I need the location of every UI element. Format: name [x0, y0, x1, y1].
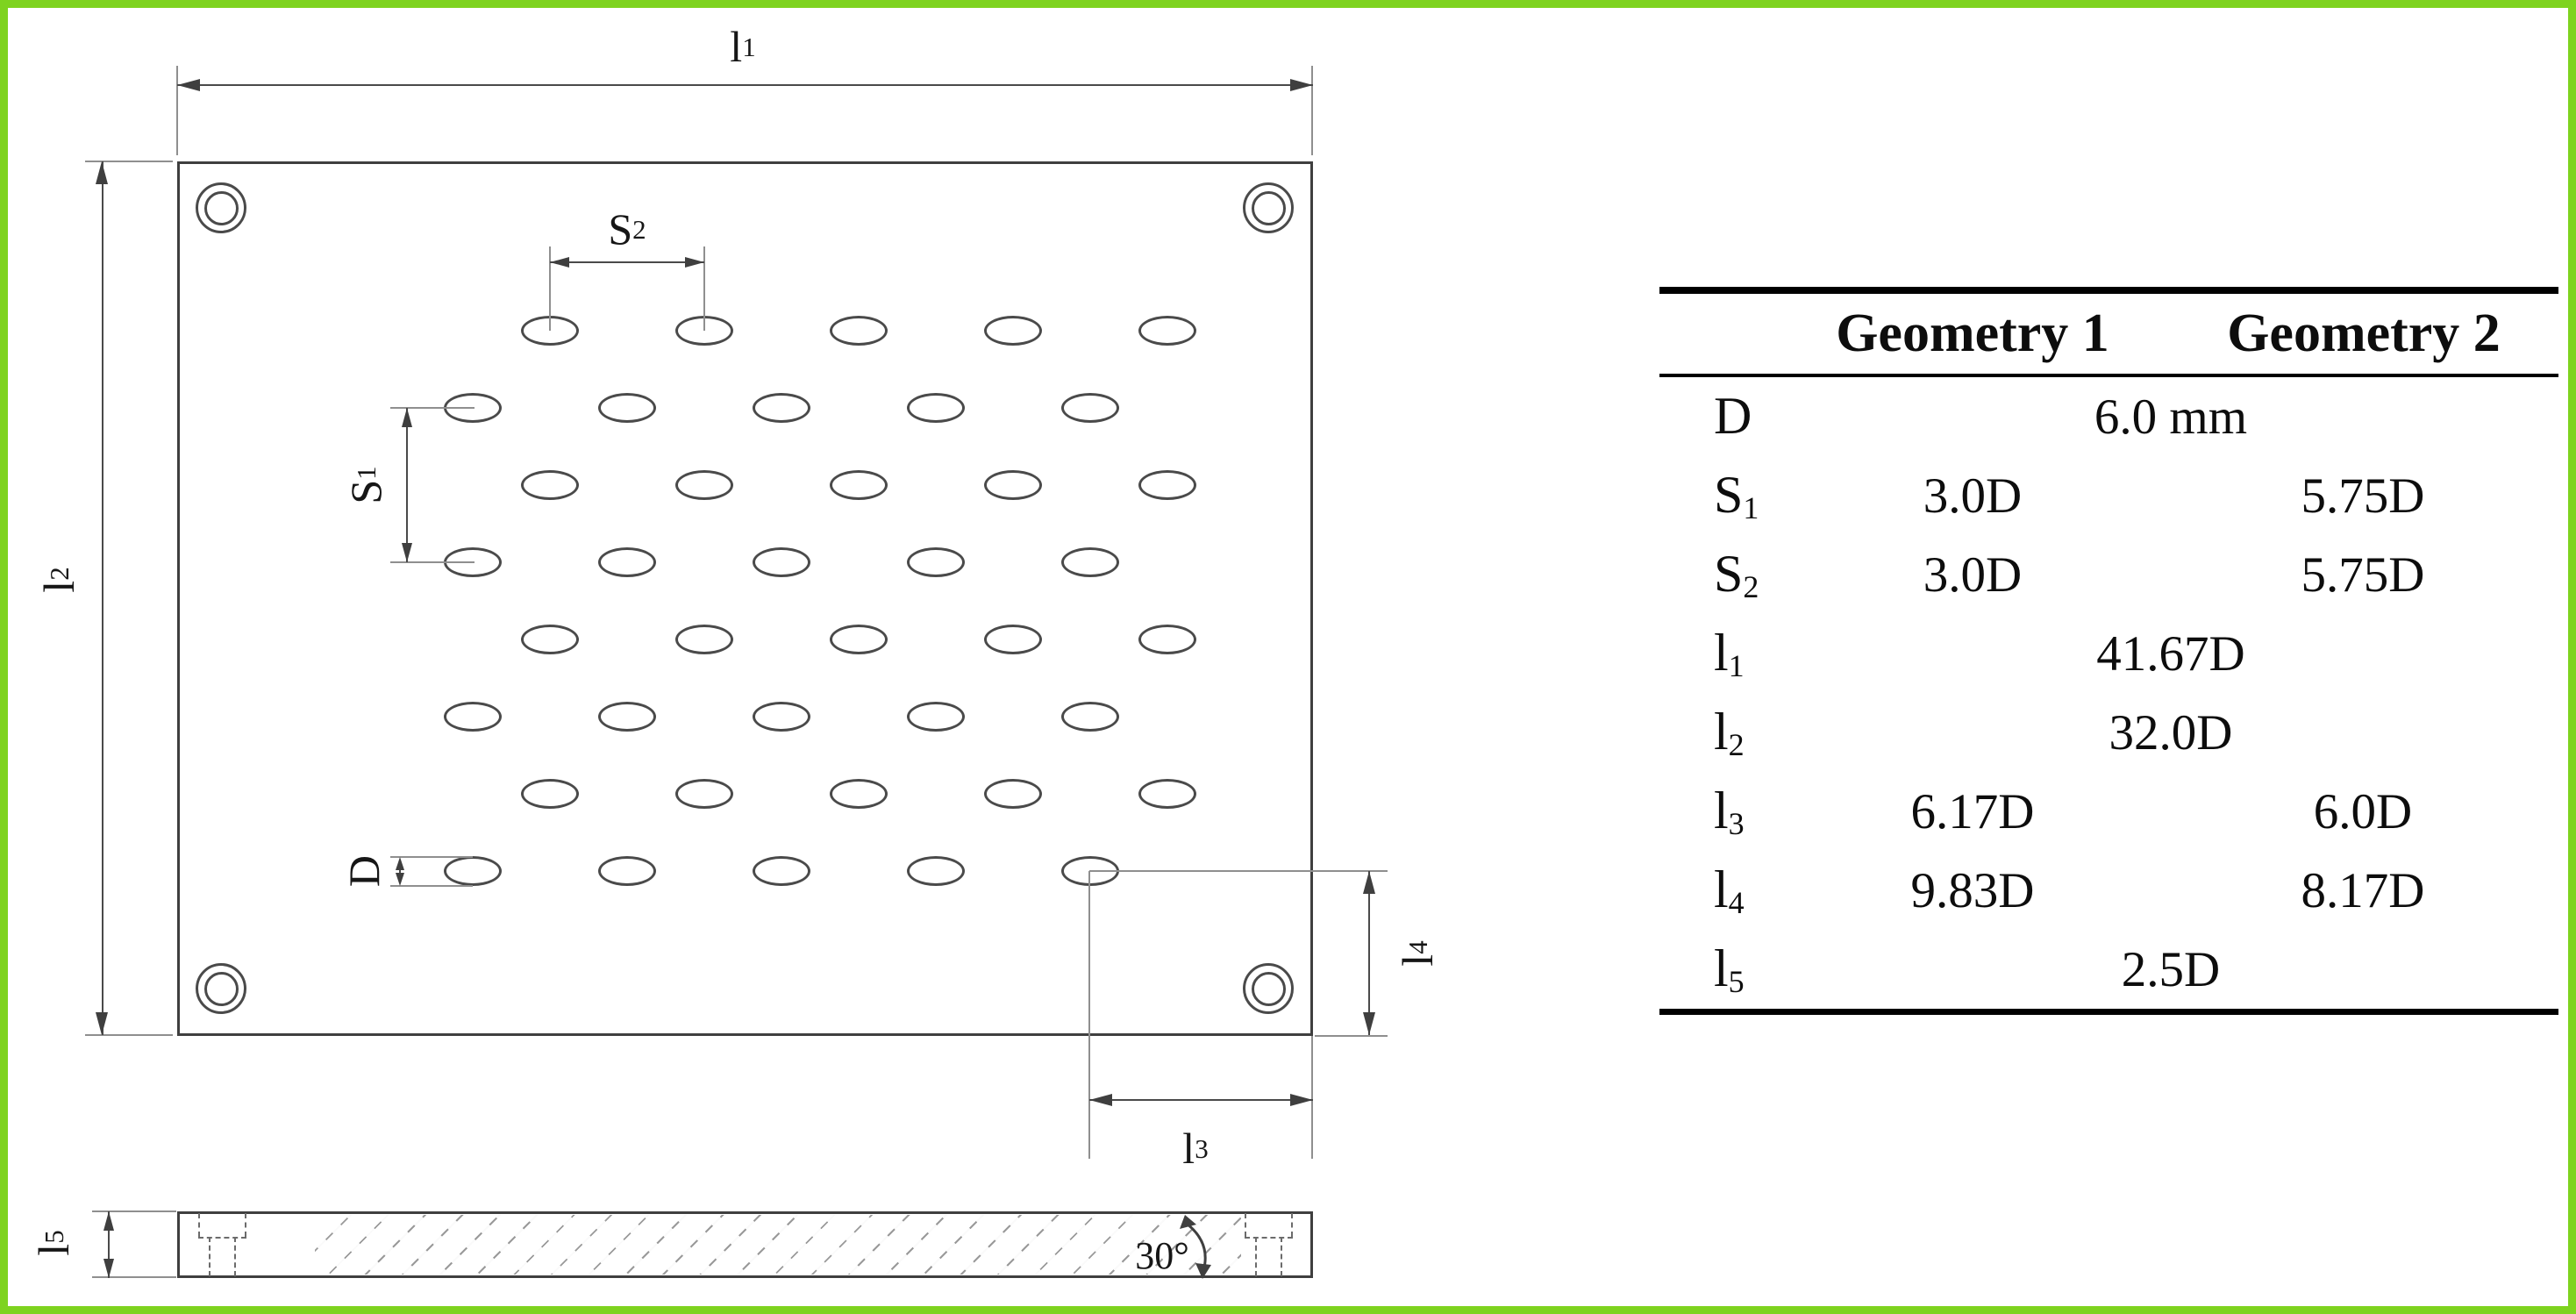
value-l1: 41.67D [1832, 625, 2558, 682]
l3-extension-line-left [1088, 871, 1090, 1159]
row-label-D: D [1659, 386, 1832, 447]
perforation-hole [907, 547, 965, 577]
perforation-hole [830, 470, 888, 500]
perforation-hole [830, 316, 888, 346]
perforation-hole [907, 702, 965, 732]
corner-mount-hole-bottom-right [1243, 963, 1294, 1014]
l4-dimension-label: l4 [1365, 901, 1470, 1006]
perforation-hole [1061, 393, 1119, 423]
row-label-S2: S2 [1659, 544, 1832, 605]
row-label-l3: l3 [1659, 781, 1832, 842]
table-row-l4: l4 9.83D 8.17D [1659, 851, 2558, 930]
value-l3-geometry1: 6.17D [1832, 783, 2113, 840]
row-label-l4: l4 [1659, 860, 1832, 921]
perforation-hole [444, 856, 502, 886]
l2-dimension-label: l2 [6, 536, 111, 624]
table-row-S1: S1 3.0D 5.75D [1659, 456, 2558, 535]
perforation-hole [753, 856, 810, 886]
perforation-hole [598, 856, 656, 886]
geometry-parameters-table: Geometry 1 Geometry 2 D 6.0 mm S1 3.0D 5… [1659, 287, 2558, 1015]
perforation-hole [598, 547, 656, 577]
row-label-l5: l5 [1659, 939, 1832, 1000]
perforation-hole [1061, 702, 1119, 732]
l4-arrowhead-top [1363, 871, 1375, 894]
l5-dimension-label: l5 [1, 1197, 106, 1289]
table-header-row: Geometry 1 Geometry 2 [1659, 294, 2558, 377]
table-row-l5: l5 2.5D [1659, 930, 2558, 1009]
perforation-hole [984, 470, 1042, 500]
l4-extension-line-bottom [1315, 1035, 1388, 1037]
l3-dimension-line [1089, 1099, 1313, 1101]
s2-arrowhead-right [685, 257, 704, 268]
l4-arrowhead-bottom [1363, 1012, 1375, 1035]
perforation-hole [1138, 316, 1196, 346]
table-row-l1: l1 41.67D [1659, 614, 2558, 693]
perforation-hole [675, 470, 733, 500]
perforation-hole [753, 702, 810, 732]
perforation-hole [1061, 547, 1119, 577]
s1-dimension-label: S1 [313, 432, 418, 538]
perforation-hole [598, 702, 656, 732]
table-row-S2: S2 3.0D 5.75D [1659, 535, 2558, 614]
counterbore-right-outer-left-edge [1245, 1213, 1246, 1237]
l1-arrowhead-right [1290, 79, 1313, 91]
perforation-hole [521, 470, 579, 500]
l3-dimension-label: l3 [1143, 1117, 1248, 1180]
value-S2-geometry2: 5.75D [2113, 546, 2558, 603]
perforation-hole [830, 625, 888, 654]
perforation-hole [984, 316, 1042, 346]
perforation-hole [907, 856, 965, 886]
hatch-angle-arc-arrow [1173, 1213, 1225, 1280]
perforation-hole [598, 393, 656, 423]
table-header-geometry-2: Geometry 2 [2113, 303, 2558, 365]
counterbore-left-outer-right-edge [245, 1213, 246, 1237]
perforation-hole [753, 547, 810, 577]
row-label-l2: l2 [1659, 702, 1832, 763]
counterbore-left-shaft-left-edge [209, 1237, 211, 1276]
perforation-hole [753, 393, 810, 423]
s1-arrowhead-bottom [402, 543, 412, 562]
value-l3-geometry2: 6.0D [2113, 783, 2558, 840]
value-S2-geometry1: 3.0D [1832, 546, 2113, 603]
perforation-hole [984, 625, 1042, 654]
perforation-hole [984, 779, 1042, 809]
l4-extension-line-top [1089, 870, 1388, 872]
l1-dimension-line [177, 84, 1313, 86]
value-S1-geometry1: 3.0D [1832, 468, 2113, 525]
table-header-geometry-1: Geometry 1 [1832, 303, 2113, 365]
counterbore-right-outer-right-edge [1291, 1213, 1293, 1237]
d-dimension-label: D [311, 818, 417, 924]
corner-mount-hole-top-right [1243, 182, 1294, 233]
l3-arrowhead-left [1089, 1094, 1112, 1106]
counterbore-right-shaft-right-edge [1281, 1237, 1282, 1276]
l1-label-text: l [730, 21, 742, 72]
counterbore-left-outer-left-edge [198, 1213, 200, 1237]
perforation-hole [1138, 625, 1196, 654]
perforation-hole [444, 702, 502, 732]
corner-mount-hole-top-left [196, 182, 246, 233]
figure-canvas: l1 l2 S2 S1 D l4 l3 [0, 0, 2576, 1314]
l1-arrowhead-left [177, 79, 200, 91]
value-l4-geometry2: 8.17D [2113, 862, 2558, 919]
row-label-S1: S1 [1659, 465, 1832, 526]
s2-arrowhead-left [550, 257, 569, 268]
value-S1-geometry2: 5.75D [2113, 468, 2558, 525]
table-row-l3: l3 6.17D 6.0D [1659, 772, 2558, 851]
counterbore-left-shaft-right-edge [234, 1237, 236, 1276]
row-label-l1: l1 [1659, 623, 1832, 684]
counterbore-right-shaft-left-edge [1255, 1237, 1257, 1276]
s2-dimension-label: S2 [574, 199, 680, 259]
table-row-l2: l2 32.0D [1659, 693, 2558, 772]
s2-dimension-line [550, 261, 704, 263]
l3-arrowhead-right [1290, 1094, 1313, 1106]
l2-arrowhead-bottom [96, 1012, 108, 1035]
value-l2: 32.0D [1832, 704, 2558, 761]
counterbore-left-shoulder [198, 1237, 246, 1239]
value-l4-geometry1: 9.83D [1832, 862, 2113, 919]
perforation-hole [521, 625, 579, 654]
perforation-hole [675, 625, 733, 654]
value-l5: 2.5D [1832, 941, 2558, 998]
perforation-hole [521, 779, 579, 809]
perforation-hole [907, 393, 965, 423]
value-D: 6.0 mm [1832, 389, 2558, 446]
perforation-hole [675, 779, 733, 809]
perforation-hole [1138, 779, 1196, 809]
perforation-hole [1138, 470, 1196, 500]
counterbore-right-shoulder [1245, 1237, 1293, 1239]
table-row-D: D 6.0 mm [1659, 377, 2558, 456]
l2-arrowhead-top [96, 161, 108, 184]
corner-mount-hole-bottom-left [196, 963, 246, 1014]
perforation-hole [830, 779, 888, 809]
s1-arrowhead-top [402, 408, 412, 427]
l1-dimension-label: l1 [690, 15, 796, 78]
